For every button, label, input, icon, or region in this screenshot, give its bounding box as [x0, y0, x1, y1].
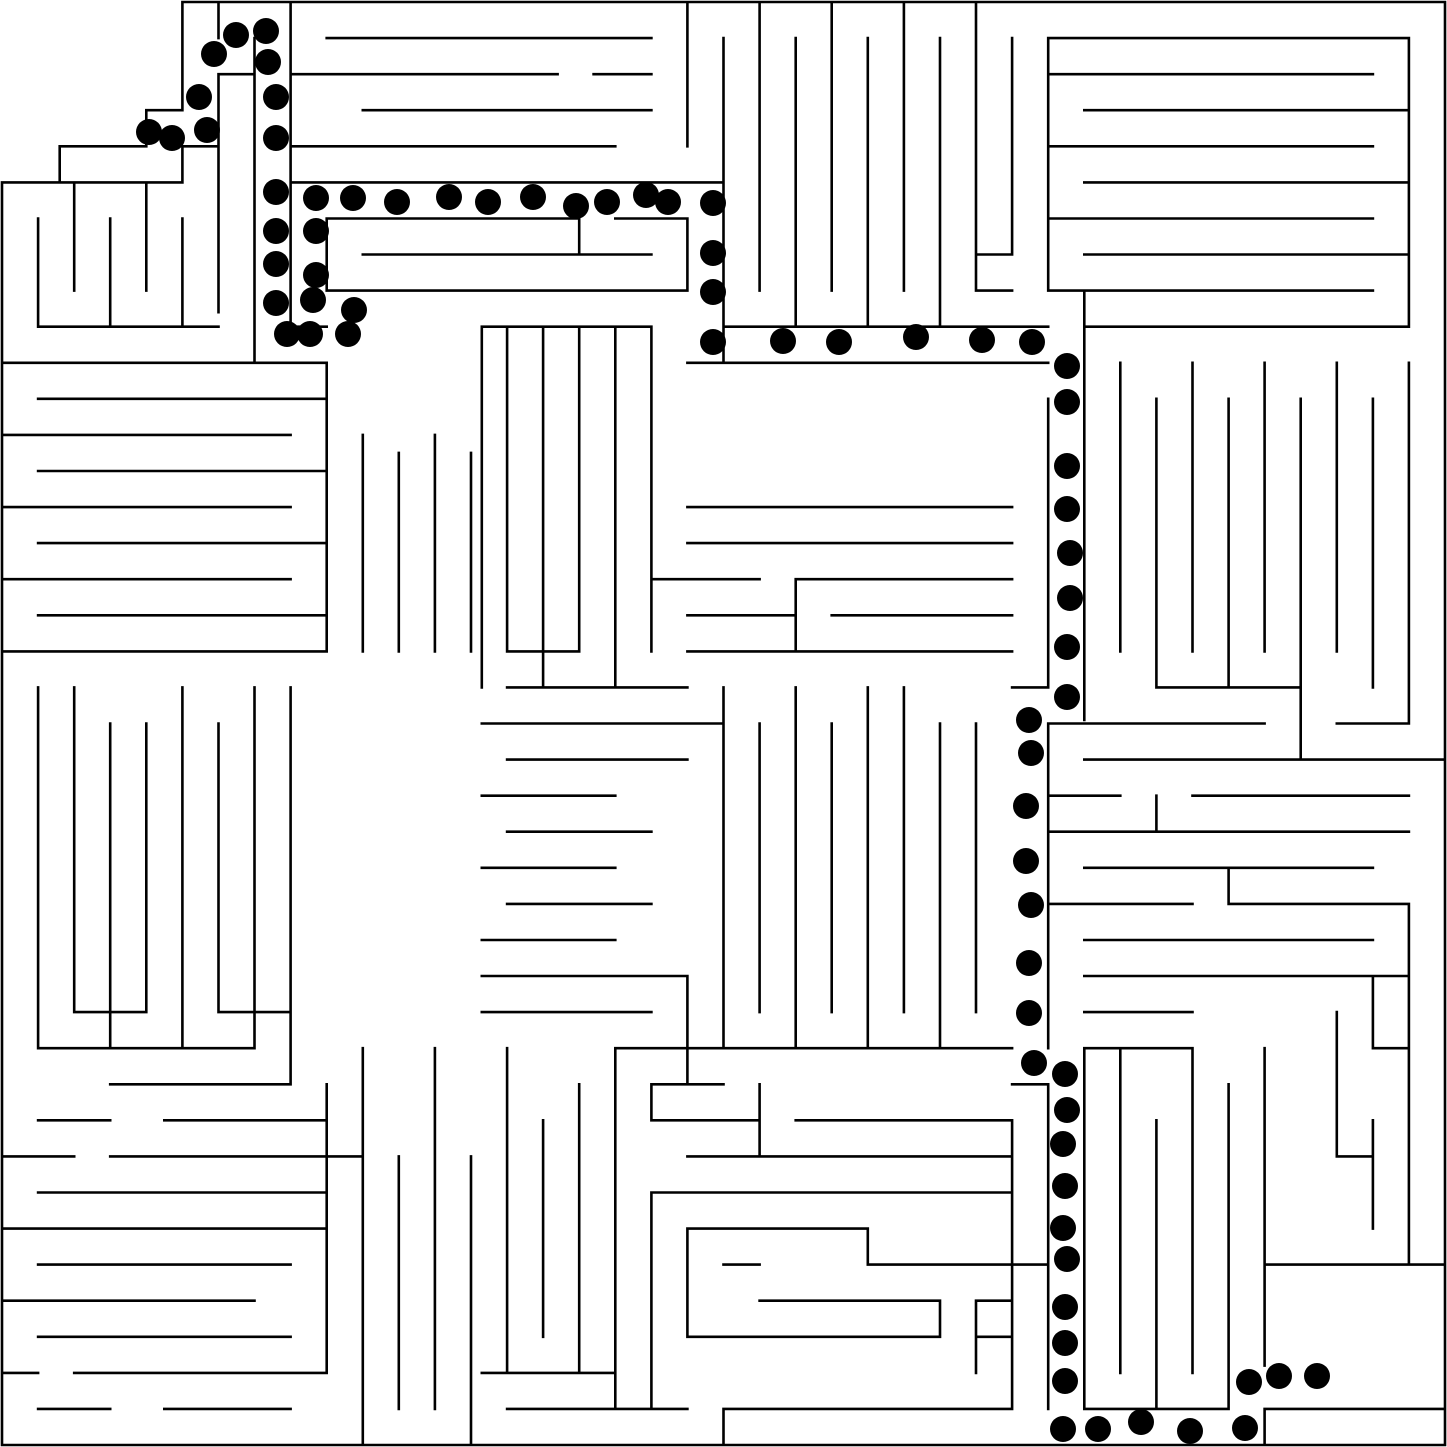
solution-dot — [520, 184, 546, 210]
solution-dot — [263, 125, 289, 151]
wall-segments — [2, 2, 1445, 1445]
solution-dot — [1013, 848, 1039, 874]
solution-dot — [1021, 1050, 1047, 1076]
solution-dot — [1177, 1418, 1203, 1444]
maze-svg — [0, 0, 1447, 1447]
solution-dot — [1236, 1369, 1262, 1395]
solution-dot — [1057, 585, 1083, 611]
solution-dot — [700, 279, 726, 305]
solution-dot — [223, 22, 249, 48]
solution-dot — [1054, 496, 1080, 522]
solution-dot — [1054, 353, 1080, 379]
solution-dot — [1052, 1173, 1078, 1199]
solution-dot — [1085, 1416, 1111, 1442]
solution-dot — [1304, 1363, 1330, 1389]
solution-dot — [969, 327, 995, 353]
solution-dot — [1050, 1215, 1076, 1241]
solution-dot — [1016, 1000, 1042, 1026]
solution-dot — [1054, 684, 1080, 710]
solution-dot — [1052, 1061, 1078, 1087]
solution-dot — [263, 218, 289, 244]
solution-dot — [1054, 1097, 1080, 1123]
solution-dot — [1050, 1416, 1076, 1442]
solution-dot — [303, 185, 329, 211]
solution-dot — [263, 84, 289, 110]
solution-dot — [136, 119, 162, 145]
solution-dot — [159, 125, 185, 151]
solution-dot — [563, 193, 589, 219]
solution-dot — [274, 321, 300, 347]
solution-dot — [263, 290, 289, 316]
solution-dot — [1018, 740, 1044, 766]
solution-dot — [263, 179, 289, 205]
maze-screenshot — [0, 0, 1447, 1447]
solution-dot — [1052, 1368, 1078, 1394]
solution-dot — [1054, 453, 1080, 479]
solution-dot — [1128, 1409, 1154, 1435]
solution-dot — [253, 18, 279, 44]
solution-dot — [340, 185, 366, 211]
solution-dot — [335, 321, 361, 347]
solution-dot — [770, 328, 796, 354]
solution-dot — [194, 117, 220, 143]
solution-dot — [1019, 329, 1045, 355]
solution-dot — [303, 262, 329, 288]
solution-dot — [903, 324, 929, 350]
solution-dot — [436, 184, 462, 210]
solution-dot — [297, 321, 323, 347]
solution-dot — [1057, 540, 1083, 566]
solution-dot — [1018, 892, 1044, 918]
solution-dot — [255, 49, 281, 75]
solution-dot — [1054, 389, 1080, 415]
solution-dot — [700, 240, 726, 266]
solution-dot — [1052, 1330, 1078, 1356]
solution-dot — [1232, 1415, 1258, 1441]
solution-dot — [201, 41, 227, 67]
solution-dot — [263, 251, 289, 277]
solution-dot — [1016, 950, 1042, 976]
solution-dot — [1052, 1294, 1078, 1320]
solution-dot — [1013, 793, 1039, 819]
solution-dot — [700, 329, 726, 355]
solution-dot — [1266, 1363, 1292, 1389]
solution-dot — [700, 190, 726, 216]
solution-dot — [303, 218, 329, 244]
solution-dot — [186, 84, 212, 110]
solution-dot — [826, 329, 852, 355]
solution-dot — [341, 297, 367, 323]
solution-dot — [300, 287, 326, 313]
solution-dot — [633, 182, 659, 208]
maze-walls — [2, 2, 1445, 1445]
solution-dot — [1054, 1246, 1080, 1272]
solution-dot — [1016, 707, 1042, 733]
solution-dot — [655, 189, 681, 215]
solution-dot — [1050, 1131, 1076, 1157]
solution-dot — [384, 189, 410, 215]
solution-dot — [475, 189, 501, 215]
solution-dot — [594, 189, 620, 215]
solution-dot — [1054, 634, 1080, 660]
